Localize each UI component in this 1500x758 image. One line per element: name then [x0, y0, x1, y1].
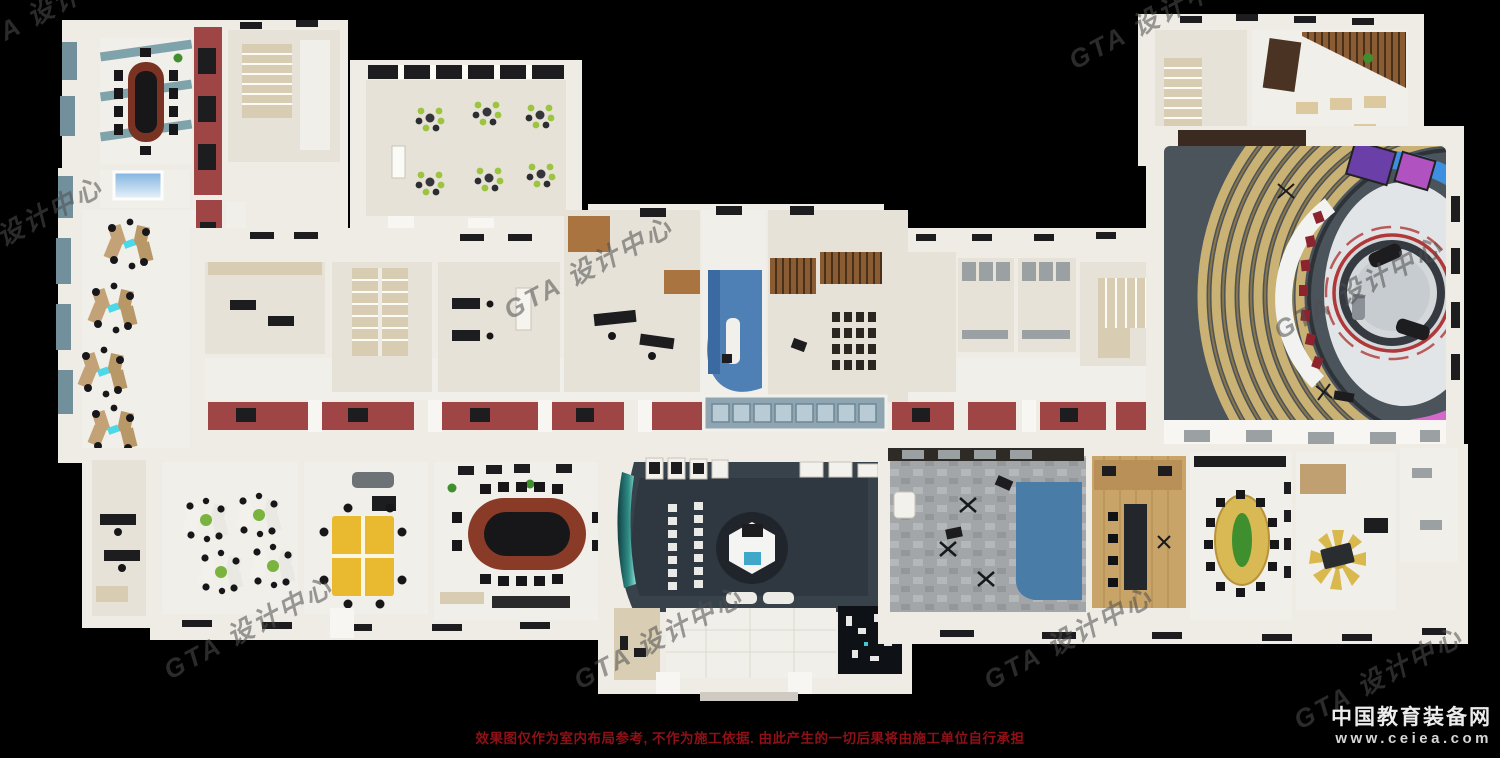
computer-lab-left-wing — [78, 210, 206, 455]
media-board — [492, 596, 570, 608]
stairwell-a — [332, 262, 432, 392]
workstation-office — [162, 462, 298, 614]
screen-room — [100, 170, 190, 208]
plant-centerpiece — [1232, 513, 1252, 567]
hvac-vent — [296, 20, 318, 27]
lectern — [392, 146, 405, 178]
stairwell-top-left — [228, 20, 340, 162]
sunburst-office — [1296, 452, 1396, 610]
sofa — [352, 472, 394, 488]
photo-studio — [888, 448, 1086, 612]
classroom-green-chairs — [350, 60, 582, 232]
blue-backdrop — [1016, 482, 1082, 600]
round-table-room — [1190, 452, 1292, 620]
shelf — [664, 270, 700, 294]
small-office-far-left — [82, 448, 156, 628]
entrance-steps — [700, 692, 798, 701]
bottom-band — [82, 444, 1468, 701]
empty-rooms-far-right — [1400, 448, 1458, 562]
exhibition-hall-block — [598, 448, 912, 701]
main-band — [190, 204, 1185, 462]
office-left — [205, 262, 325, 354]
display-stands-right — [800, 462, 878, 477]
plant — [174, 54, 183, 63]
hvac-vent — [240, 22, 262, 29]
training-room-chair-rows — [768, 210, 908, 402]
meeting-table — [1124, 504, 1147, 590]
window-band-teal — [704, 396, 886, 430]
site-name: 中国教育装备网 — [1331, 706, 1492, 730]
sky-projection-screen — [114, 172, 162, 199]
site-watermark: 中国教育装备网 www.ceiea.com — [1331, 706, 1492, 747]
render-canvas: GTA 设计中心 GTA 设计中心 GTA 设计中心 GTA 设计中心 GTA … — [0, 0, 1500, 758]
site-url: www.ceiea.com — [1331, 730, 1492, 747]
wood-slat-wall — [820, 252, 882, 284]
oval-conference-room — [434, 462, 608, 620]
plant — [1363, 53, 1373, 63]
reception-blue — [702, 210, 766, 402]
wood-slat-wall — [770, 258, 816, 294]
floorplan-rendering: GTA 设计中心 GTA 设计中心 GTA 设计中心 GTA 设计中心 GTA … — [0, 0, 1500, 758]
disclaimer-text: 效果图仅作为室内布局参考, 不作为施工依据. 由此产生的一切后果将由施工单位自行… — [0, 727, 1500, 747]
conference-room-top-left — [100, 38, 192, 164]
